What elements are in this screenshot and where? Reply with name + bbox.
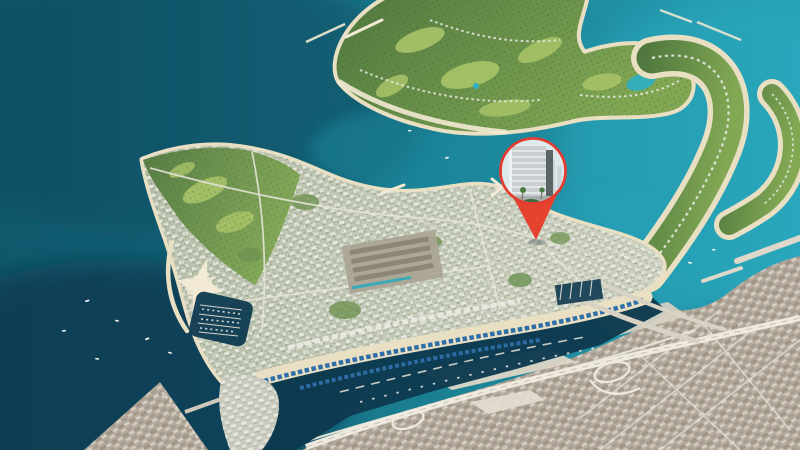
aerial-map-view xyxy=(0,0,800,450)
map-canvas xyxy=(0,0,800,450)
pin-shadow xyxy=(528,239,546,245)
